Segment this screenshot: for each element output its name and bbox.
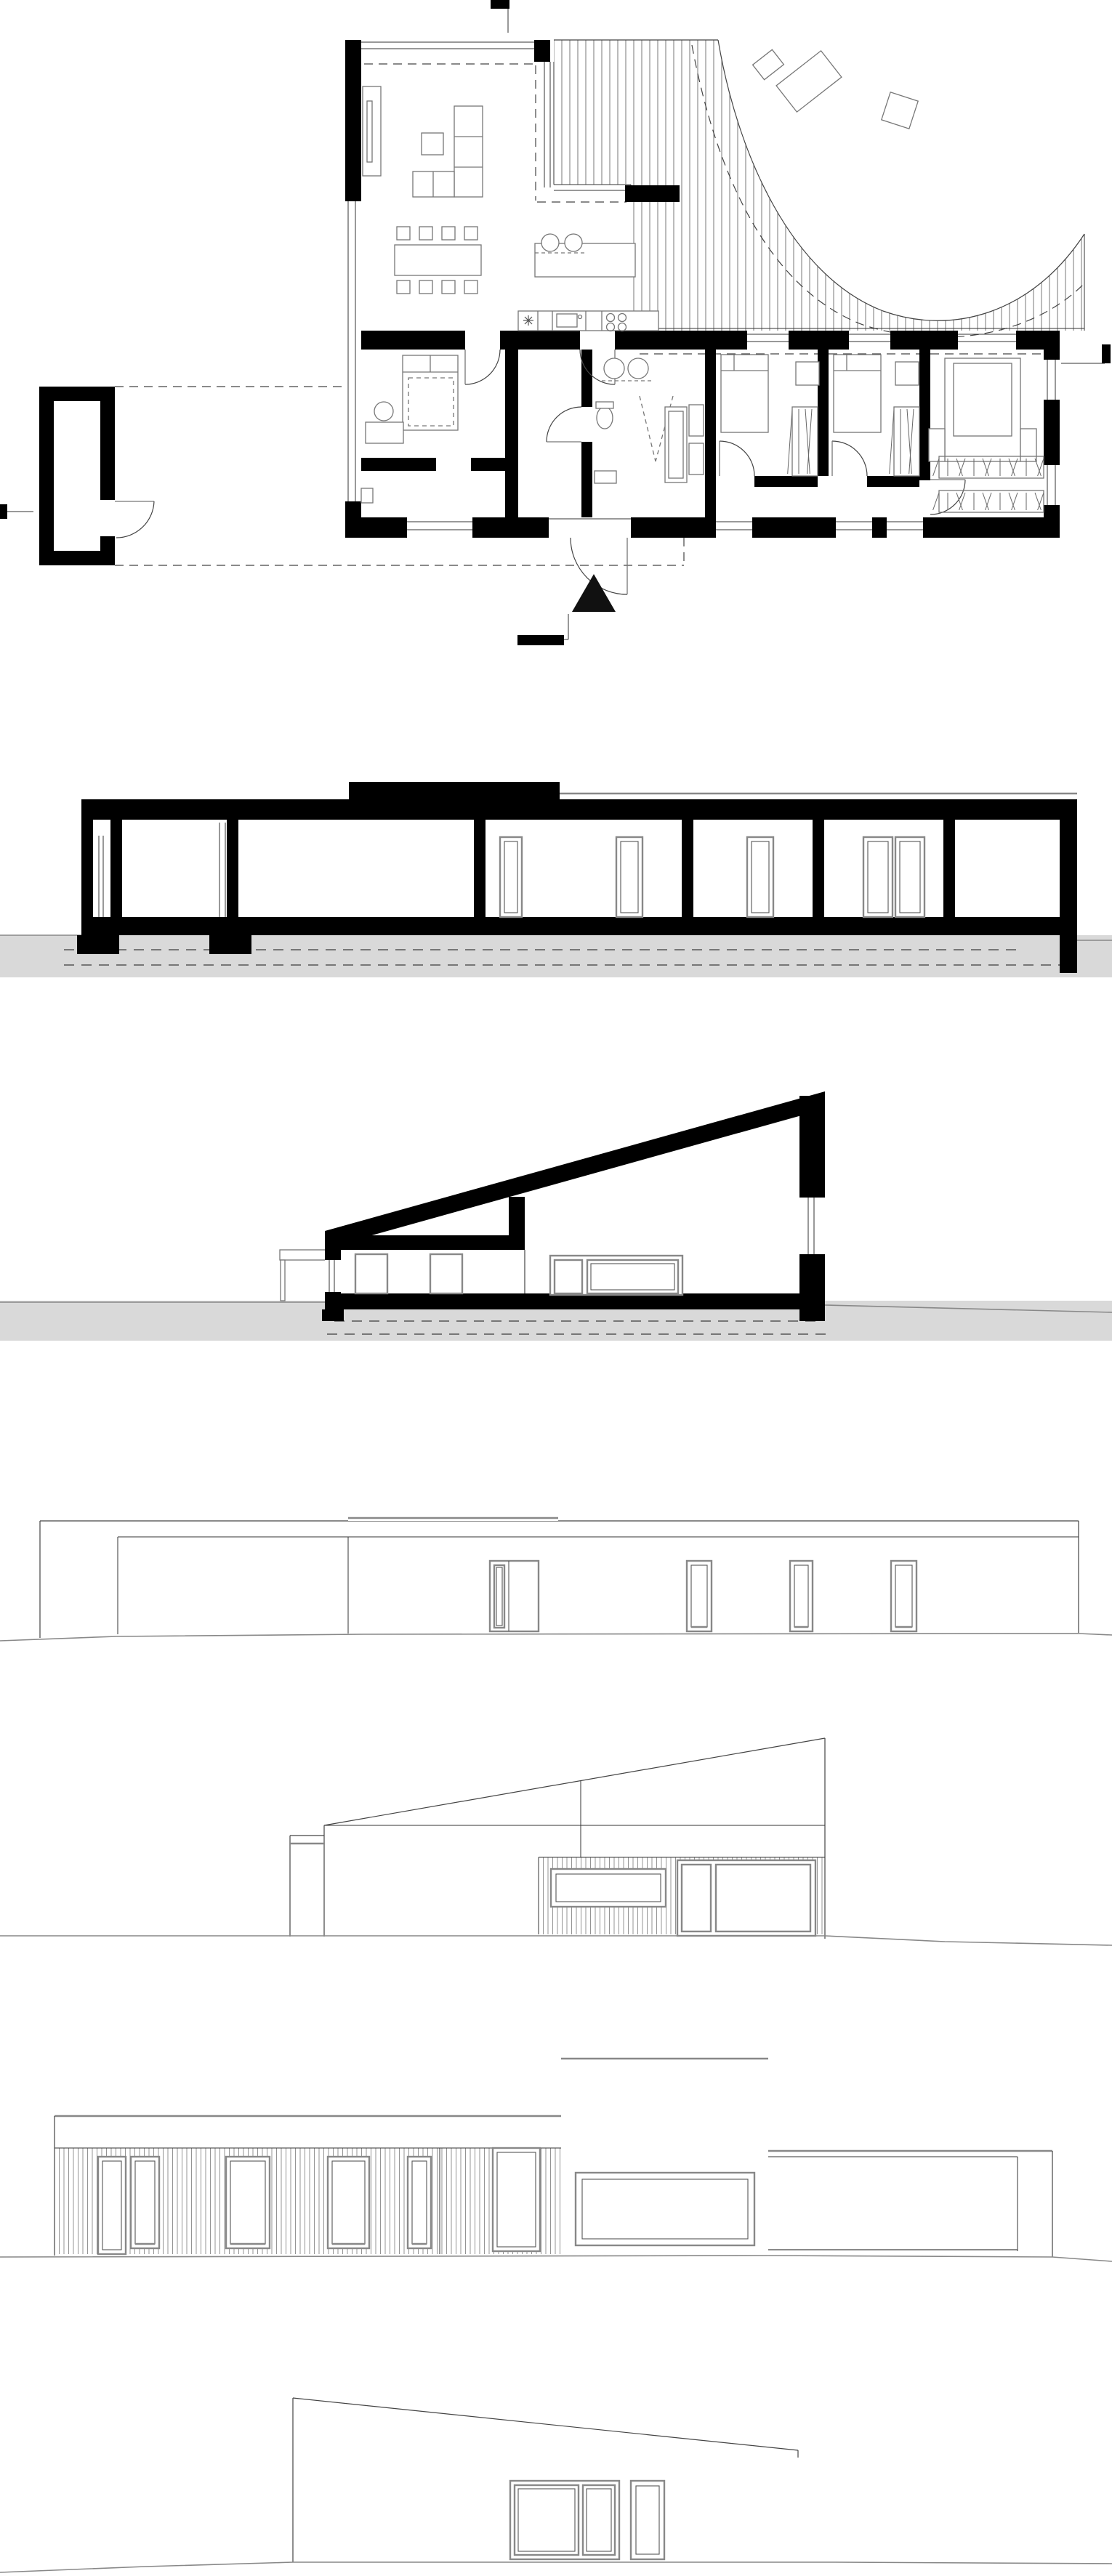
panel-gable-elevation — [0, 1738, 1112, 1945]
section-marker-right — [1061, 344, 1111, 363]
entrance-door — [490, 1561, 539, 1631]
drawing-sheet — [0, 0, 1112, 2576]
narrow-windows — [687, 1561, 916, 1631]
panel-entrance-elevation — [0, 1443, 1112, 1641]
sofa — [454, 106, 483, 197]
bathroom — [595, 358, 704, 483]
rear-storage-volume — [673, 2458, 836, 2562]
washer-icon — [604, 358, 624, 379]
kitchen-counter — [518, 311, 658, 331]
fridge-icon — [523, 315, 533, 326]
storage-building — [39, 387, 115, 565]
chair — [374, 402, 393, 421]
section-marker-bottom — [517, 614, 568, 645]
desk — [366, 422, 403, 443]
section-marker-left — [0, 504, 33, 519]
dryer-icon — [628, 358, 648, 379]
panel-cross-section — [0, 1091, 1112, 1341]
section-marker-top — [491, 0, 509, 33]
bedrooms — [721, 355, 1044, 512]
architectural-drawing — [0, 0, 1112, 2576]
carport-volume — [768, 2151, 1052, 2257]
panel-rear-elevation — [0, 2398, 1112, 2572]
north-arrow-icon — [572, 574, 616, 612]
washbasin-icon — [595, 471, 616, 483]
rear-glazed-doors — [510, 2481, 664, 2559]
panel-floor-plan — [0, 0, 1111, 645]
panel-garden-elevation — [0, 2059, 1112, 2261]
coffee-table — [422, 133, 443, 155]
dining-table — [395, 245, 481, 275]
panel-longitudinal-section — [0, 729, 1112, 977]
lounger — [776, 51, 842, 112]
guest-room — [361, 355, 458, 503]
side-table — [882, 92, 918, 129]
master-bed — [945, 358, 1020, 461]
toilet-icon — [597, 407, 613, 429]
